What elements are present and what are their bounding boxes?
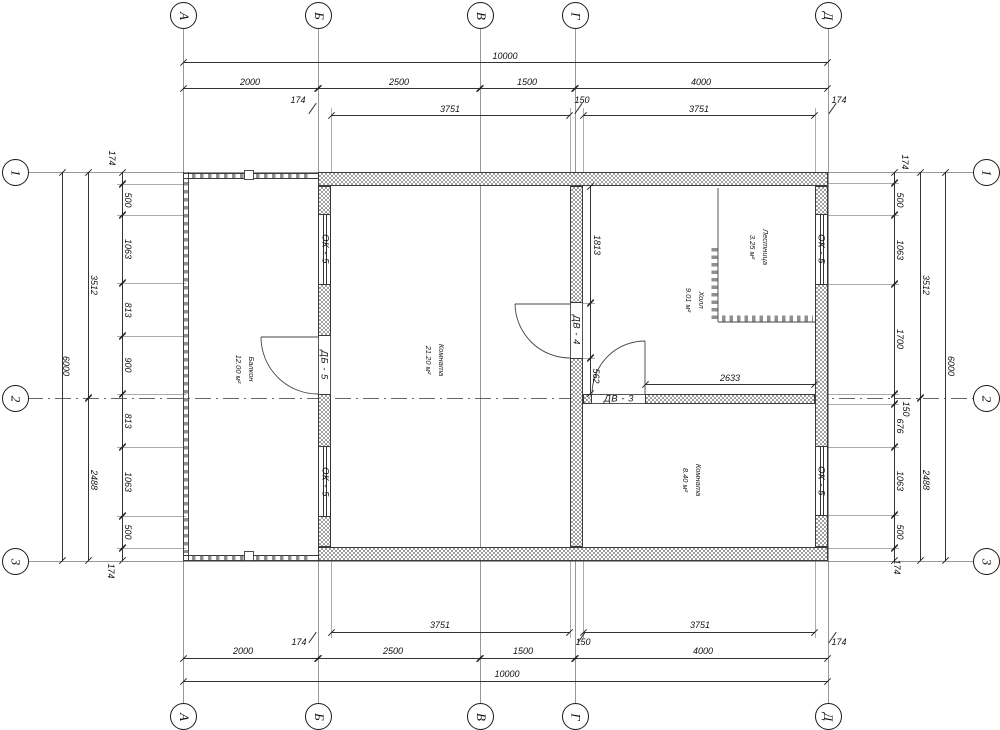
room-area: 9.01 м² (681, 288, 694, 312)
wall-right-segment (815, 515, 828, 547)
room-name: Лестница (758, 229, 771, 265)
axis-line-row-2 (27, 398, 973, 399)
dim-text: 1063 (895, 471, 905, 491)
dim-line (331, 115, 570, 116)
axis-label: 2 (8, 395, 24, 402)
dim-text: 1700 (895, 329, 905, 349)
axis-line-col-d (828, 27, 829, 703)
door-label-dv3: ДВ - 3 (604, 394, 634, 405)
dim-text: 3751 (440, 104, 460, 114)
axis-bubble-left-1: 1 (2, 159, 29, 186)
dim-text: 813 (123, 413, 133, 428)
dim-line (480, 658, 575, 659)
extension-line (117, 516, 186, 517)
dim-text: 500 (895, 524, 905, 539)
room-area: 21.20 м² (421, 344, 434, 376)
extension-line (828, 183, 899, 184)
dim-text: 174 (831, 637, 846, 647)
extension-line (570, 561, 571, 638)
axis-label: А (175, 713, 191, 721)
dim-line (183, 681, 828, 682)
extension-line (117, 184, 186, 185)
axis-bubble-right-1: 1 (973, 159, 1000, 186)
axis-label: 2 (979, 395, 995, 402)
dim-text: 174 (106, 563, 116, 578)
dim-text: 10000 (492, 51, 517, 61)
dim-text: 3751 (690, 620, 710, 630)
wall-left-segment (318, 284, 331, 336)
balcony-rail-post (245, 552, 254, 561)
axis-bubble-top-g: Г (562, 2, 589, 29)
dim-line (480, 88, 575, 89)
dim-leader (308, 103, 316, 114)
dim-text: 3751 (689, 104, 709, 114)
extension-line (815, 561, 816, 638)
dim-text: 2500 (389, 77, 409, 87)
wall-left-segment (318, 516, 331, 547)
extension-line (117, 215, 186, 216)
axis-label: Г (568, 12, 584, 19)
wall-interior-segment (645, 394, 815, 404)
dim-line (183, 62, 828, 63)
room-name: Комната (434, 344, 447, 376)
wall-middle-segment (570, 186, 583, 303)
floor-plan-sheet: 10000 2000 2500 1500 4000 174 3751 150 3… (0, 0, 1000, 730)
dim-text: 1500 (513, 646, 533, 656)
wall-middle-segment (570, 358, 583, 547)
wall-left-segment (318, 186, 331, 215)
room-label-stairs: Лестница 3.25 м² (745, 229, 771, 265)
dim-text: 1063 (123, 239, 133, 259)
dim-text: 813 (123, 302, 133, 317)
axis-line-col-v (480, 27, 481, 703)
extension-line (828, 215, 899, 216)
dim-line (183, 658, 318, 659)
axis-bubble-bottom-a: А (170, 703, 197, 730)
dim-text: 174 (290, 95, 305, 105)
axis-bubble-right-2: 2 (973, 385, 1000, 412)
door-swing-db5 (261, 337, 318, 394)
window-label-ok5: ОК - 5 (320, 467, 331, 497)
dim-text: 562 (591, 368, 601, 383)
window-label-ok5: ОК - 5 (320, 234, 331, 264)
dim-text: 2000 (240, 77, 260, 87)
dim-text: 2488 (921, 470, 931, 490)
window-label-ok5: ОК - 5 (816, 466, 827, 496)
room-area: 3.25 м² (745, 229, 758, 265)
axis-line-row-3 (27, 561, 973, 562)
extension-line (828, 394, 899, 395)
axis-label: Г (568, 713, 584, 720)
dim-line (583, 632, 815, 633)
room-label-balcony: Балкон 12.00 м² (231, 355, 257, 384)
extension-line (117, 548, 186, 549)
dim-line (318, 658, 480, 659)
dim-text: 900 (123, 357, 133, 372)
axis-label: 3 (8, 558, 24, 565)
axis-bubble-top-d: Д (815, 2, 842, 29)
axis-bubble-left-3: 3 (2, 548, 29, 575)
dim-text: 4000 (693, 646, 713, 656)
axis-bubble-top-v: В (467, 2, 494, 29)
room-area: 12.00 м² (231, 355, 244, 384)
room-label-small-room: Комната 8.40 м² (678, 464, 704, 496)
axis-label: 1 (8, 169, 24, 176)
room-name: Холл (694, 288, 707, 312)
axis-label: В (472, 713, 488, 721)
extension-line (815, 108, 816, 172)
axis-label: В (472, 12, 488, 20)
dim-text: 3512 (89, 275, 99, 295)
extension-line (117, 394, 186, 395)
dim-text: 6000 (946, 356, 956, 376)
axis-label: 3 (979, 558, 995, 565)
dim-leader (308, 632, 316, 643)
extension-line (828, 284, 899, 285)
dim-text: 2500 (383, 646, 403, 656)
dim-text: 500 (123, 192, 133, 207)
axis-bubble-top-b: Б (305, 2, 332, 29)
extension-line (583, 561, 584, 638)
dim-text: 150 (574, 95, 589, 105)
dim-text: 3512 (921, 275, 931, 295)
dim-text: 3751 (430, 620, 450, 630)
axis-bubble-bottom-v: В (467, 703, 494, 730)
dim-text: 174 (291, 637, 306, 647)
wall-left-segment (318, 394, 331, 447)
dim-line (590, 186, 591, 303)
room-label-main-room: Комната 21.20 м² (421, 344, 447, 376)
door-swing-dv4 (515, 304, 570, 358)
dim-text: 174 (107, 150, 117, 165)
dim-text: 1063 (123, 472, 133, 492)
dim-text: 500 (123, 524, 133, 539)
dim-line (583, 115, 815, 116)
axis-bubble-top-a: А (170, 2, 197, 29)
dim-text: 1500 (517, 77, 537, 87)
extension-line (828, 447, 899, 448)
room-name: Комната (691, 464, 704, 496)
dim-text: 2488 (89, 470, 99, 490)
extension-line (117, 336, 186, 337)
door-label-db5: ДБ - 5 (319, 350, 330, 380)
axis-bubble-right-3: 3 (973, 548, 1000, 575)
wall-right-segment (815, 284, 828, 447)
extension-line (331, 561, 332, 638)
dim-line (122, 548, 123, 561)
wall-bottom (318, 547, 828, 561)
axis-label: Б (310, 12, 326, 20)
extension-line (828, 548, 899, 549)
axis-label: 1 (979, 169, 995, 176)
axis-bubble-bottom-b: Б (305, 703, 332, 730)
dim-text: 150 (901, 401, 911, 416)
extension-line (828, 515, 899, 516)
dim-text: 6000 (61, 356, 71, 376)
axis-label: Д (821, 11, 837, 19)
dim-text: 150 (575, 637, 590, 647)
window-label-ok5: ОК - 5 (816, 234, 827, 264)
dim-line (331, 632, 570, 633)
dim-line (183, 88, 318, 89)
extension-line (117, 447, 186, 448)
dim-text: 500 (895, 192, 905, 207)
dim-text: 676 (895, 418, 905, 433)
extension-line (331, 108, 332, 172)
room-label-hall: Холл 9.01 м² (681, 288, 707, 312)
dim-text: 10000 (494, 669, 519, 679)
axis-bubble-left-2: 2 (2, 385, 29, 412)
dim-text: 174 (892, 559, 902, 574)
dim-line (645, 384, 815, 385)
room-name: Балкон (244, 355, 257, 384)
extension-line (117, 283, 186, 284)
axis-label: Б (310, 713, 326, 721)
dim-text: 2633 (720, 373, 740, 383)
dim-text: 4000 (691, 77, 711, 87)
dim-line (590, 303, 591, 358)
room-area: 8.40 м² (678, 464, 691, 496)
dim-text: 1063 (895, 240, 905, 260)
axis-bubble-bottom-d: Д (815, 703, 842, 730)
axis-bubble-bottom-g: Г (562, 703, 589, 730)
door-label-dv4: ДВ - 4 (571, 315, 582, 345)
dim-text: 174 (900, 154, 910, 169)
dim-line (575, 658, 828, 659)
doors-stairs-railing-layer (0, 0, 1000, 730)
dim-line (575, 88, 828, 89)
extension-line (828, 404, 899, 405)
dim-text: 2000 (233, 646, 253, 656)
wall-right-segment (815, 186, 828, 215)
wall-top (318, 172, 828, 186)
axis-label: А (175, 12, 191, 20)
dim-text: 174 (831, 95, 846, 105)
dim-text: 1813 (592, 235, 602, 255)
dim-line (318, 88, 480, 89)
axis-line-col-a (183, 27, 184, 703)
axis-label: Д (821, 712, 837, 720)
